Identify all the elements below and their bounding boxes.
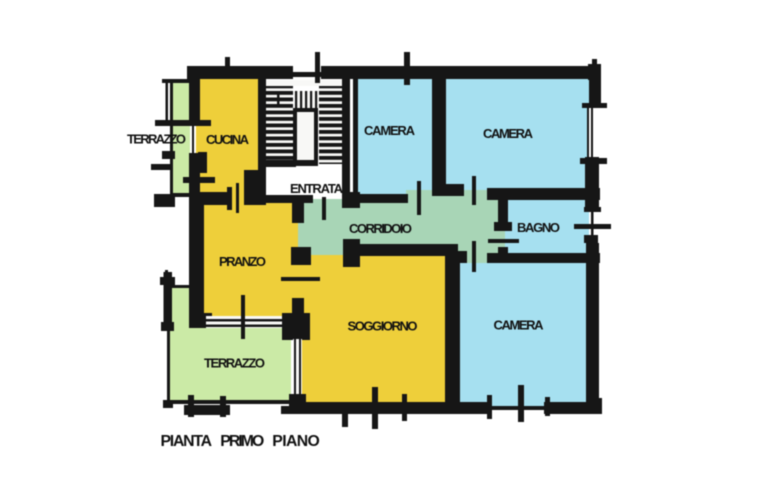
svg-text:PIANTA: PIANTA (161, 433, 213, 450)
svg-text:CAMERA: CAMERA (483, 126, 534, 141)
svg-text:SOGGIORNO: SOGGIORNO (348, 319, 418, 334)
svg-text:CAMERA: CAMERA (494, 318, 545, 333)
svg-text:PRIMO: PRIMO (220, 433, 264, 450)
svg-text:PIANO: PIANO (272, 433, 320, 450)
svg-text:CUCINA: CUCINA (206, 132, 250, 147)
svg-text:ENTRATA: ENTRATA (290, 181, 344, 196)
svg-text:BAGNO: BAGNO (517, 220, 560, 235)
svg-text:TERRAZZO: TERRAZZO (204, 356, 265, 371)
svg-text:CORRIDOIO: CORRIDOIO (349, 221, 412, 236)
svg-text:TERRAZZO: TERRAZZO (127, 132, 186, 147)
svg-text:PRANZO: PRANZO (219, 254, 266, 269)
svg-text:CAMERA: CAMERA (364, 123, 416, 138)
